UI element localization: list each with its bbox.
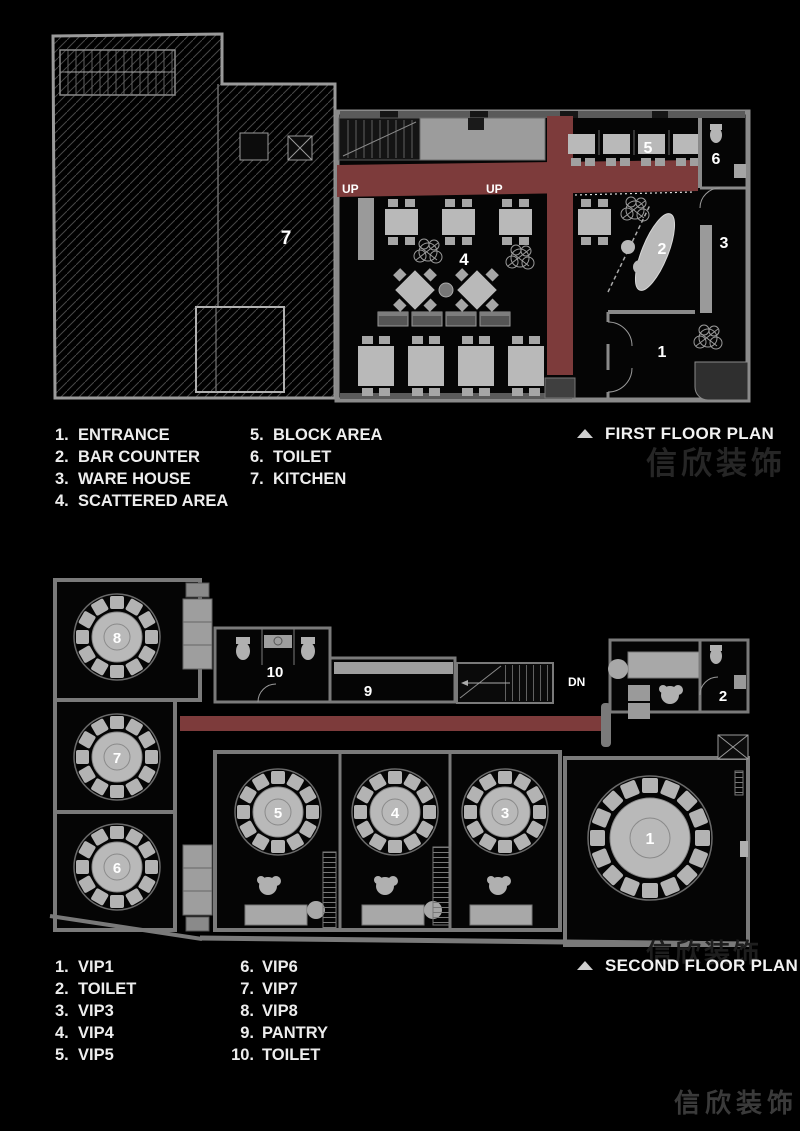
toilet-fixture-icon (301, 642, 315, 660)
vip1-number: 1 (646, 831, 655, 848)
first-floor-legend-col1: 1.ENTRANCE 2.BAR COUNTER 3.WARE HOUSE 4.… (55, 424, 228, 512)
legend-row: 4.SCATTERED AREA (55, 490, 228, 512)
legend-row: 6.VIP6 (228, 956, 328, 978)
stool (628, 703, 650, 719)
up-label-left: UP (342, 182, 359, 196)
legend-num: 7. (228, 978, 262, 1000)
vip7-number: 7 (113, 750, 121, 767)
vip5-number: 5 (274, 805, 282, 822)
legend-num: 6. (228, 956, 262, 978)
legend-num: 3. (55, 468, 78, 490)
entry-step-block (695, 362, 748, 400)
legend-row: 2.BAR COUNTER (55, 446, 228, 468)
legend-label: VIP5 (78, 1044, 114, 1066)
up-label-center: UP (486, 182, 503, 196)
toilet-number-ff: 6 (712, 151, 721, 168)
entrance-number: 1 (658, 344, 667, 361)
corridor-band (180, 716, 602, 731)
scattered-number: 4 (459, 250, 469, 269)
legend-label: VIP6 (262, 956, 298, 978)
stool (307, 901, 325, 919)
legend-label: SCATTERED AREA (78, 490, 228, 512)
sofa (183, 845, 212, 915)
triangle-marker-icon (577, 429, 593, 438)
dn-label: DN (568, 675, 585, 689)
legend-num: 6. (250, 446, 273, 468)
stool (628, 685, 650, 701)
legend-num: 1. (55, 424, 78, 446)
legend-num: 5. (250, 424, 273, 446)
shaft-crossed-box (718, 735, 748, 759)
vip8-number: 8 (113, 630, 121, 647)
vip6-number: 6 (113, 860, 121, 877)
legend-label: BAR COUNTER (78, 446, 200, 468)
legend-row: 2.TOILET (55, 978, 136, 1000)
first-floor-plan: 7 UP UP (40, 22, 760, 412)
legend-label: VIP4 (78, 1022, 114, 1044)
second-floor-title: SECOND FLOOR PLAN (605, 956, 798, 976)
shaft-crossed-box (288, 136, 312, 160)
triangle-marker-icon (577, 961, 593, 970)
kitchen-number: 7 (281, 228, 292, 249)
toilet2-number: 2 (719, 688, 727, 705)
legend-label: VIP1 (78, 956, 114, 978)
legend-row: 1.VIP1 (55, 956, 136, 978)
stair-landing (339, 118, 545, 160)
legend-num: 2. (55, 978, 78, 1000)
legend-label: VIP7 (262, 978, 298, 1000)
watermark: 信欣装饰 (646, 438, 786, 483)
kitchen-fixture (240, 133, 268, 160)
legend-num: 2. (55, 446, 78, 468)
floor-plan-sheet: 7 UP UP (0, 0, 800, 1131)
vip7-room: 7 (74, 714, 160, 800)
armchair (608, 659, 628, 679)
legend-num: 7. (250, 468, 273, 490)
vip4-number: 4 (391, 805, 400, 822)
legend-num: 4. (55, 490, 78, 512)
legend-label: KITCHEN (273, 468, 346, 490)
legend-label: VIP3 (78, 1000, 114, 1022)
pantry-number: 9 (364, 683, 372, 700)
kitchen-area: 7 (53, 34, 335, 398)
legend-label: TOILET (262, 1044, 320, 1066)
corridor-end-wall (601, 703, 611, 747)
legend-row: 5.VIP5 (55, 1044, 136, 1066)
sofa (245, 905, 307, 925)
pantry-counter (334, 662, 453, 674)
watermark: 信欣装饰 (674, 1083, 798, 1120)
legend-num: 3. (55, 1000, 78, 1022)
sofa (183, 599, 212, 669)
partition-screen (433, 847, 451, 925)
legend-label: ENTRANCE (78, 424, 170, 446)
corridor-landing (545, 378, 575, 398)
legend-num: 10. (228, 1044, 262, 1066)
second-floor-legend-col1: 1.VIP1 2.TOILET 3.VIP3 4.VIP4 5.VIP5 (55, 956, 136, 1066)
legend-row: 6.TOILET (250, 446, 382, 468)
vip5-room: 5 (235, 769, 321, 855)
legend-num: 8. (228, 1000, 262, 1022)
legend-row: 7.VIP7 (228, 978, 328, 1000)
legend-label: BLOCK AREA (273, 424, 382, 446)
legend-label: VIP8 (262, 1000, 298, 1022)
legend-label: PANTRY (262, 1022, 328, 1044)
sofa (362, 905, 424, 925)
legend-row: 3.WARE HOUSE (55, 468, 228, 490)
corridor-vertical (547, 116, 573, 375)
legend-row: 9.PANTRY (228, 1022, 328, 1044)
legend-label: TOILET (78, 978, 136, 1000)
warehouse-number: 3 (720, 235, 729, 252)
legend-label: TOILET (273, 446, 331, 468)
toilet-fixture-icon (236, 642, 250, 660)
legend-row: 10.TOILET (228, 1044, 328, 1066)
bar-number: 2 (658, 241, 667, 258)
center-stand (439, 283, 453, 297)
legend-label: WARE HOUSE (78, 468, 191, 490)
bench-counter (358, 198, 374, 260)
sink-icon (734, 675, 746, 689)
vip3-room: 3 (462, 769, 548, 855)
legend-num: 9. (228, 1022, 262, 1044)
second-floor-plan: 8 7 6 10 9 (40, 565, 760, 955)
first-floor-legend-col2: 5.BLOCK AREA 6.TOILET 7.KITCHEN (250, 424, 382, 490)
legend-num: 4. (55, 1022, 78, 1044)
partition-screen (323, 852, 336, 928)
sofa (628, 652, 700, 678)
legend-row: 5.BLOCK AREA (250, 424, 382, 446)
vip4-room: 4 (352, 769, 438, 855)
second-floor-legend-col2: 6.VIP6 7.VIP7 8.VIP8 9.PANTRY 10.TOILET (228, 956, 328, 1066)
legend-row: 4.VIP4 (55, 1022, 136, 1044)
legend-num: 5. (55, 1044, 78, 1066)
toilet10-number: 10 (267, 664, 284, 681)
sofa (470, 905, 532, 925)
legend-row: 7.KITCHEN (250, 468, 382, 490)
block-area-number: 5 (644, 140, 653, 157)
legend-row: 3.VIP3 (55, 1000, 136, 1022)
legend-row: 1.ENTRANCE (55, 424, 228, 446)
vip3-number: 3 (501, 805, 509, 822)
sink-icon (734, 164, 746, 178)
legend-row: 8.VIP8 (228, 1000, 328, 1022)
legend-num: 1. (55, 956, 78, 978)
shelving (700, 225, 712, 313)
